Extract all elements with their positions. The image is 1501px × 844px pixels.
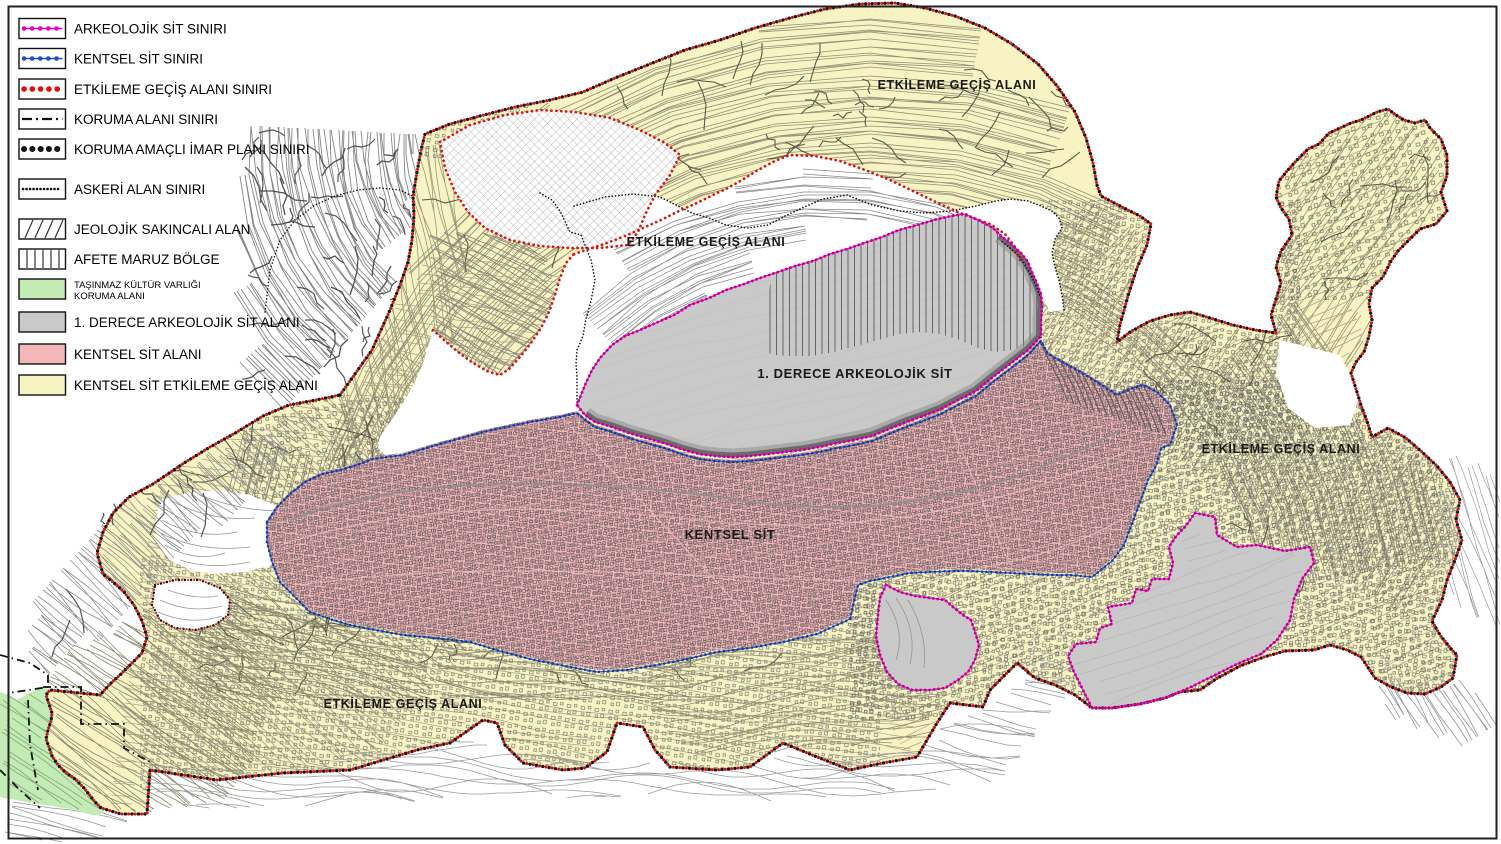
svg-text:KORUMA AMAÇLI İMAR PLANI SINIR: KORUMA AMAÇLI İMAR PLANI SINIRI [74, 142, 310, 157]
svg-text:KORUMA ALANI SINIRI: KORUMA ALANI SINIRI [74, 112, 218, 127]
svg-text:KENTSEL SİT ALANI: KENTSEL SİT ALANI [74, 347, 202, 362]
svg-text:ETKİLEME GEÇİŞ ALANI: ETKİLEME GEÇİŞ ALANI [324, 696, 483, 711]
svg-text:KENTSEL SİT ETKİLEME GEÇİŞ ALA: KENTSEL SİT ETKİLEME GEÇİŞ ALANI [74, 378, 318, 393]
svg-text:ASKERİ ALAN SINIRI: ASKERİ ALAN SINIRI [74, 182, 205, 197]
svg-text:1. DERECE ARKEOLOJİK SİT ALANI: 1. DERECE ARKEOLOJİK SİT ALANI [74, 315, 300, 330]
svg-text:AFETE MARUZ BÖLGE: AFETE MARUZ BÖLGE [74, 252, 220, 267]
svg-text:ETKİLEME GEÇİŞ ALANI: ETKİLEME GEÇİŞ ALANI [878, 77, 1037, 92]
svg-text:ETKİLEME GEÇİŞ ALANI: ETKİLEME GEÇİŞ ALANI [1202, 441, 1361, 456]
svg-text:JEOLOJİK SAKINCALI ALAN: JEOLOJİK SAKINCALI ALAN [74, 222, 250, 237]
svg-text:ETKİLEME GEÇİŞ ALANI SINIRI: ETKİLEME GEÇİŞ ALANI SINIRI [74, 82, 272, 97]
svg-text:KORUMA ALANI: KORUMA ALANI [74, 291, 145, 302]
svg-text:ETKİLEME GEÇİŞ ALANI: ETKİLEME GEÇİŞ ALANI [627, 234, 786, 249]
svg-text:KENTSEL SİT: KENTSEL SİT [685, 527, 776, 542]
svg-text:TAŞINMAZ KÜLTÜR VARLIĞI: TAŞINMAZ KÜLTÜR VARLIĞI [74, 280, 201, 291]
svg-text:1. DERECE ARKEOLOJİK SİT: 1. DERECE ARKEOLOJİK SİT [757, 366, 952, 381]
svg-text:KENTSEL SİT SINIRI: KENTSEL SİT SINIRI [74, 52, 203, 67]
svg-text:ARKEOLOJİK SİT SINIRI: ARKEOLOJİK SİT SINIRI [74, 22, 227, 37]
